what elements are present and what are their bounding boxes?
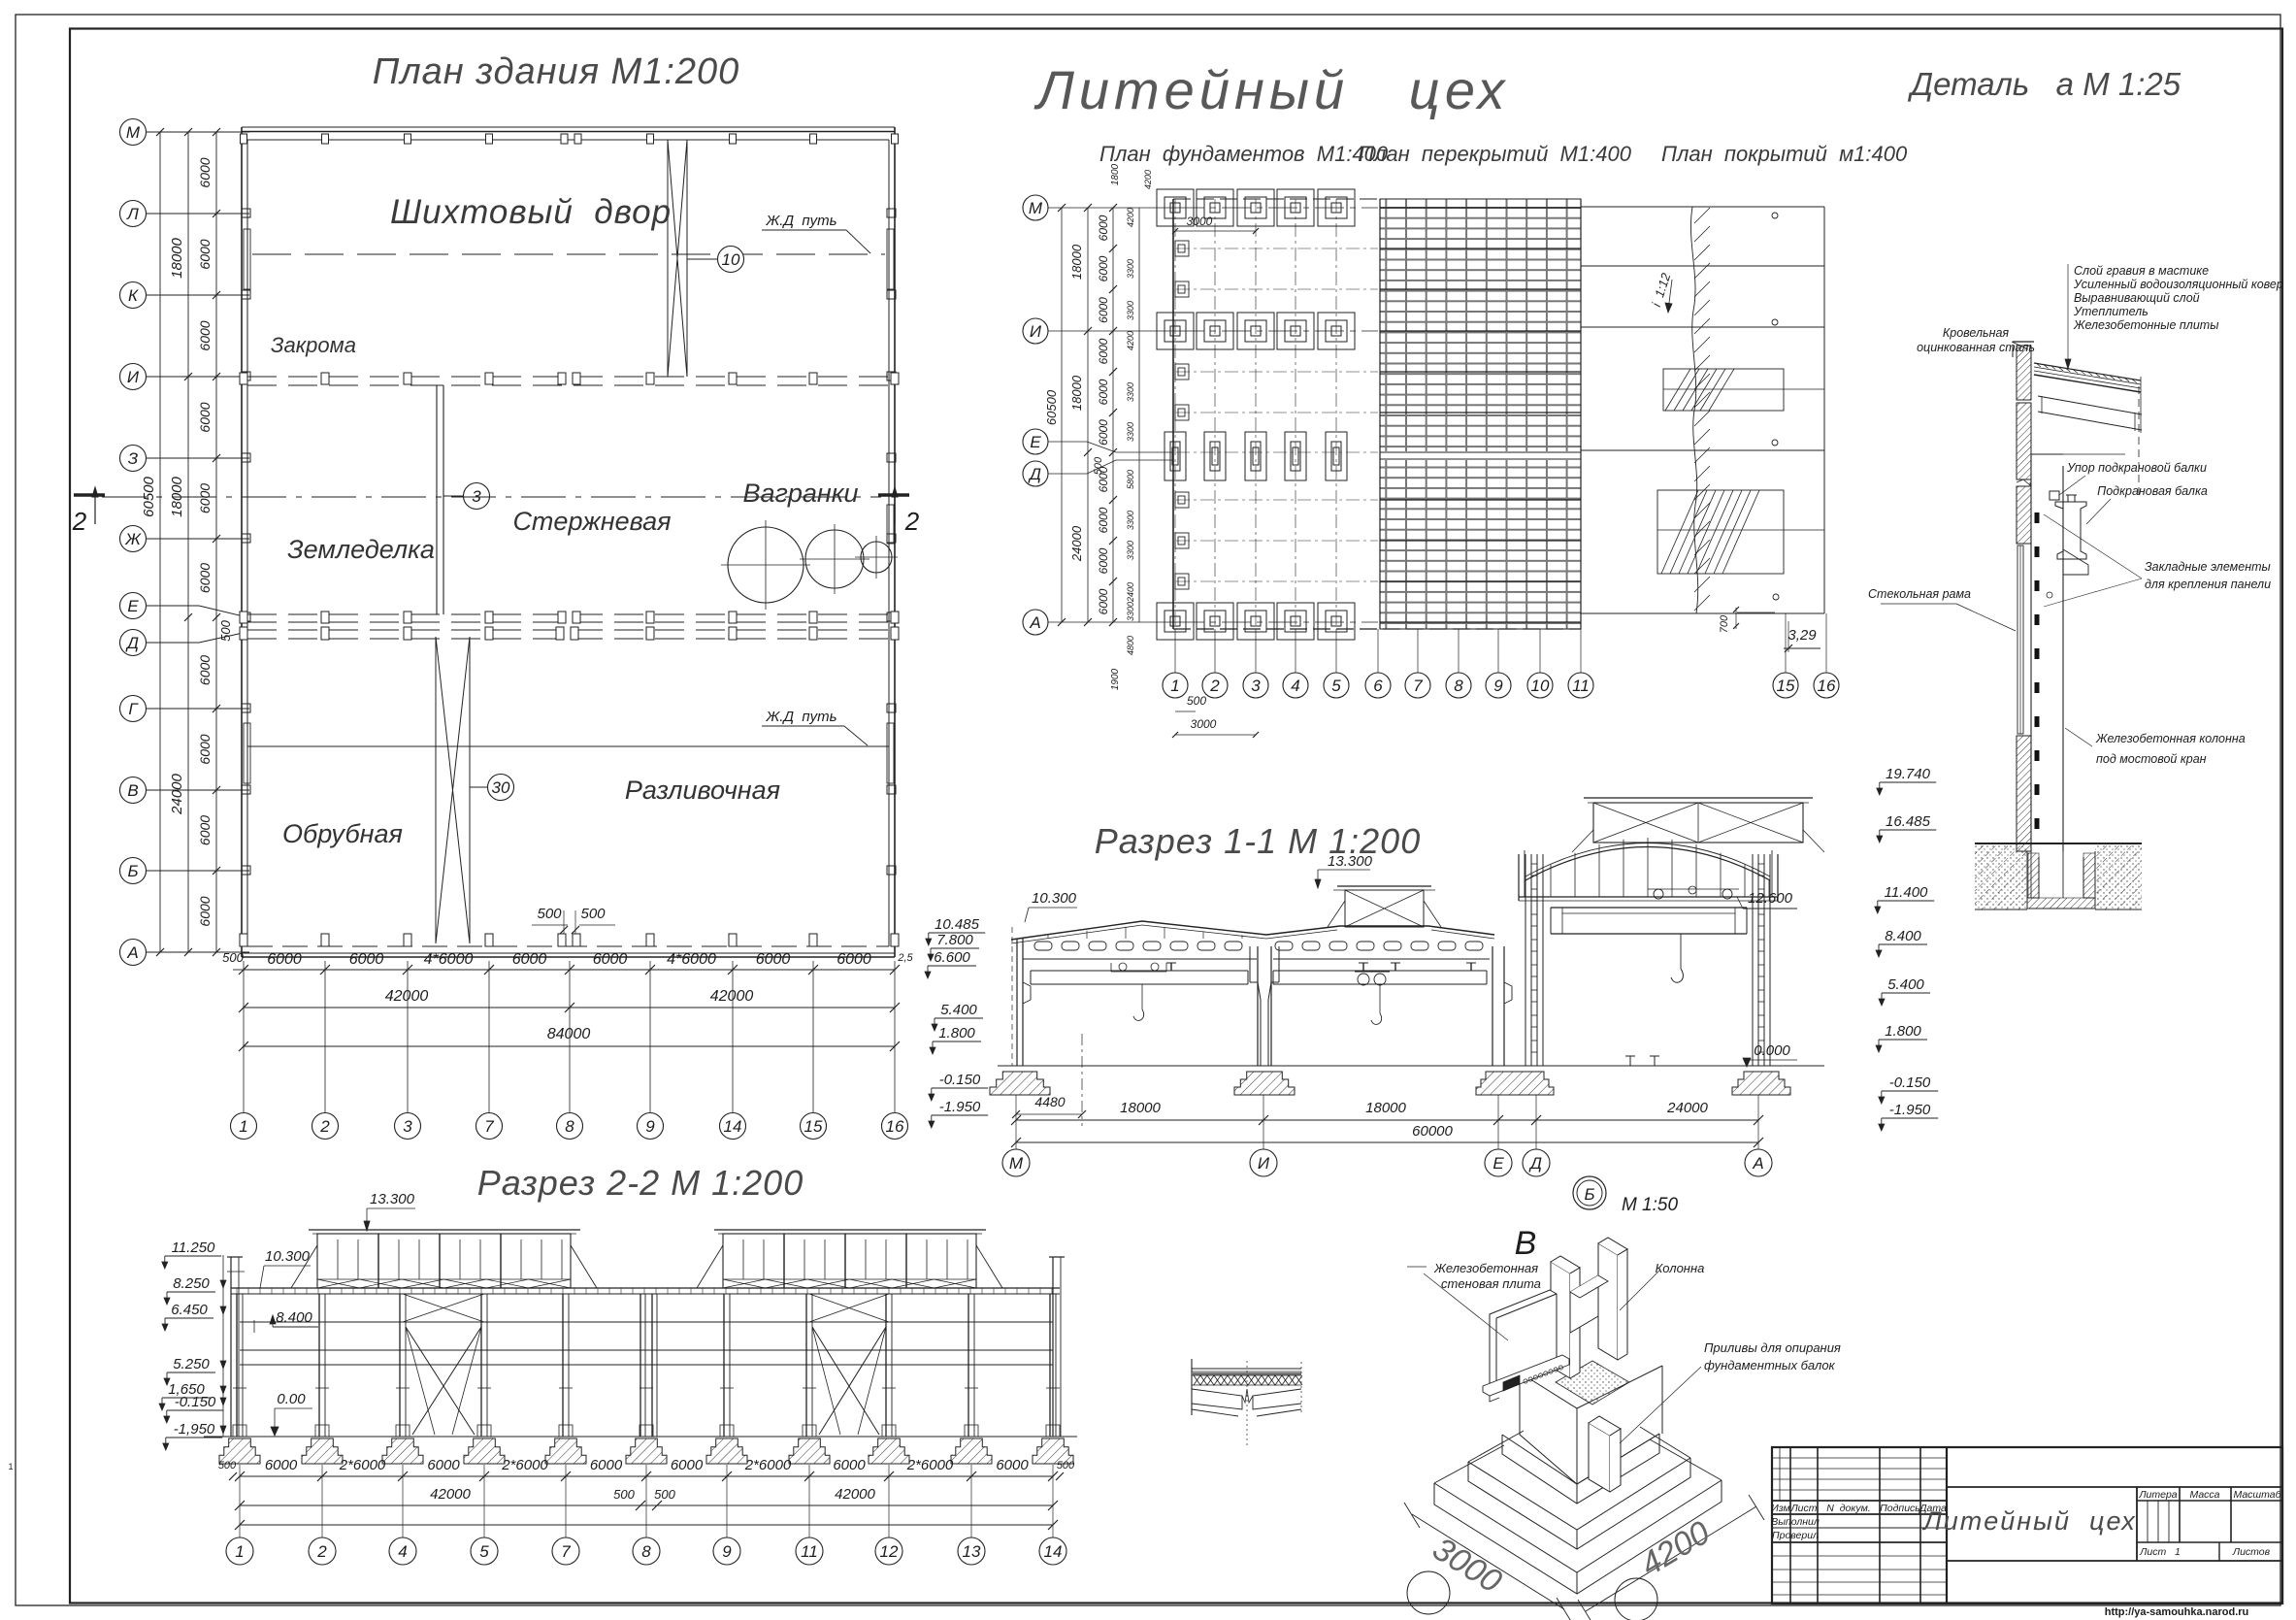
svg-text:6000: 6000 (593, 951, 628, 968)
svg-text:6000: 6000 (590, 1457, 623, 1473)
svg-text:4*6000: 4*6000 (667, 951, 716, 968)
svg-text:500: 500 (1187, 694, 1206, 708)
svg-text:Подпись: Подпись (1880, 1503, 1920, 1514)
svg-text:3300: 3300 (1126, 259, 1135, 279)
svg-text:3,29: 3,29 (1788, 627, 1817, 644)
svg-text:2*6000: 2*6000 (339, 1457, 386, 1473)
svg-text:18000: 18000 (169, 237, 185, 278)
svg-text:И: И (127, 368, 140, 386)
svg-text:Д: Д (1028, 465, 1041, 483)
svg-text:М: М (1009, 1154, 1024, 1173)
svg-text:6000: 6000 (1097, 255, 1110, 281)
svg-text:Утеплитель: Утеплитель (2073, 305, 2148, 318)
svg-text:8: 8 (565, 1117, 574, 1136)
svg-text:Изм: Изм (1771, 1503, 1789, 1514)
svg-text:6000: 6000 (1097, 419, 1110, 446)
svg-text:В: В (1515, 1225, 1537, 1262)
svg-text:9: 9 (1493, 677, 1503, 695)
svg-text:Разливочная: Разливочная (625, 776, 780, 805)
svg-text:Ж.Д путь: Ж.Д путь (766, 709, 837, 725)
svg-text:Литера: Литера (2138, 1489, 2177, 1501)
svg-text:6000: 6000 (671, 1457, 704, 1473)
svg-text:6000: 6000 (197, 483, 213, 513)
svg-text:-0.150: -0.150 (939, 1072, 981, 1088)
svg-text:7: 7 (1413, 677, 1423, 695)
svg-text:А: А (1752, 1154, 1763, 1173)
svg-text:6000: 6000 (1097, 379, 1110, 405)
svg-text:6000: 6000 (836, 951, 871, 968)
svg-text:Земледелка: Земледелка (287, 535, 435, 564)
svg-text:3300: 3300 (1126, 511, 1135, 530)
svg-text:2,5: 2,5 (897, 952, 913, 964)
svg-text:6000: 6000 (197, 402, 213, 432)
svg-text:6000: 6000 (1097, 338, 1110, 364)
svg-text:11: 11 (801, 1542, 818, 1561)
svg-text:6000: 6000 (197, 815, 213, 845)
svg-text:6000: 6000 (197, 239, 213, 269)
svg-text:6000: 6000 (1097, 507, 1110, 533)
svg-text:М: М (126, 123, 141, 142)
svg-text:А: А (126, 943, 138, 962)
svg-text:оцинкованная сталь: оцинкованная сталь (1917, 341, 2035, 354)
svg-text:Б: Б (127, 862, 138, 880)
svg-text:9: 9 (722, 1542, 732, 1561)
svg-text:8.400: 8.400 (1885, 928, 1921, 944)
svg-text:10.485: 10.485 (935, 916, 980, 933)
svg-text:6000: 6000 (197, 734, 213, 764)
svg-text:План фундаментов М1:400: План фундаментов М1:400 (1099, 142, 1389, 166)
svg-text:13.300: 13.300 (370, 1191, 415, 1207)
svg-text:Масса: Масса (2189, 1489, 2219, 1501)
svg-text:8: 8 (1454, 677, 1463, 695)
svg-text:19.740: 19.740 (1886, 766, 1931, 782)
svg-text:Лист: Лист (1789, 1503, 1817, 1514)
svg-text:12.600: 12.600 (1748, 890, 1793, 907)
svg-text:2*6000: 2*6000 (744, 1457, 792, 1473)
svg-text:60000: 60000 (1412, 1123, 1453, 1140)
svg-text:План здания М1:200: План здания М1:200 (373, 51, 740, 92)
svg-text:6000: 6000 (996, 1457, 1029, 1473)
svg-text:42000: 42000 (835, 1486, 875, 1503)
svg-text:5.400: 5.400 (940, 1002, 977, 1018)
svg-text:2*6000: 2*6000 (501, 1457, 548, 1473)
svg-text:2: 2 (319, 1117, 330, 1136)
svg-text:Упор подкрановой балки: Упор подкрановой балки (2066, 461, 2207, 475)
svg-text:Масштаб: Масштаб (2233, 1489, 2281, 1501)
svg-text:1.800: 1.800 (1885, 1023, 1921, 1040)
svg-text:18000: 18000 (1365, 1100, 1406, 1116)
svg-text:Лист 1: Лист 1 (2139, 1546, 2181, 1558)
svg-text:5.400: 5.400 (1887, 976, 1924, 993)
svg-text:6000: 6000 (427, 1457, 460, 1473)
svg-text:16: 16 (1818, 677, 1836, 695)
svg-text:5: 5 (1331, 677, 1341, 695)
svg-text:для крепления панели: для крепления панели (2145, 578, 2271, 591)
svg-text:1: 1 (235, 1542, 244, 1561)
svg-text:3300: 3300 (1126, 541, 1135, 560)
svg-text:Ж.Д путь: Ж.Д путь (766, 213, 837, 229)
svg-text:16: 16 (886, 1117, 904, 1136)
svg-text:Приливы для опирания: Приливы для опирания (1704, 1340, 1841, 1355)
svg-text:8.250: 8.250 (173, 1275, 210, 1292)
svg-text:Ж: Ж (124, 530, 142, 548)
svg-text:3000: 3000 (1187, 215, 1213, 228)
svg-text:6000: 6000 (756, 951, 791, 968)
svg-text:500: 500 (218, 1460, 237, 1471)
svg-text:Е: Е (1030, 433, 1041, 451)
svg-text:0.00: 0.00 (277, 1391, 306, 1407)
svg-text:2: 2 (72, 507, 87, 536)
svg-text:11: 11 (1572, 677, 1590, 695)
svg-text:Шихтовый двор: Шихтовый двор (390, 193, 672, 231)
svg-text:А: А (1029, 613, 1040, 632)
svg-text:12: 12 (880, 1542, 899, 1561)
svg-text:14: 14 (724, 1117, 742, 1136)
svg-text:М 1:50: М 1:50 (1622, 1195, 1679, 1215)
svg-text:-1.950: -1.950 (939, 1099, 981, 1115)
svg-text:План покрытий м1:400: План покрытий м1:400 (1661, 142, 1908, 166)
svg-text:500: 500 (218, 619, 233, 641)
svg-text:6000: 6000 (1097, 547, 1110, 574)
svg-text:24000: 24000 (1069, 525, 1084, 562)
svg-text:Подкрановая балка: Подкрановая балка (2097, 484, 2208, 498)
svg-text:42000: 42000 (430, 1486, 471, 1503)
svg-text:4200: 4200 (1126, 331, 1135, 350)
svg-text:Закладные элементы: Закладные элементы (2145, 560, 2271, 574)
svg-text:под мостовой кран: под мостовой кран (2096, 752, 2207, 766)
svg-text:Проверил: Проверил (1772, 1530, 1819, 1541)
svg-text:6000: 6000 (197, 320, 213, 350)
svg-text:4200: 4200 (1126, 208, 1135, 227)
svg-text:М: М (1029, 199, 1043, 217)
svg-text:42000: 42000 (385, 988, 429, 1005)
svg-text:Железобетонные плиты: Железобетонные плиты (2073, 318, 2218, 332)
svg-text:-0.150: -0.150 (175, 1394, 216, 1410)
svg-text:500: 500 (1057, 1460, 1075, 1471)
svg-text:8: 8 (641, 1542, 651, 1561)
svg-text:10: 10 (1531, 677, 1550, 695)
svg-text:Б: Б (1584, 1185, 1594, 1204)
svg-text:9: 9 (645, 1117, 655, 1136)
svg-text:-1.950: -1.950 (1889, 1102, 1931, 1118)
svg-text:0.000: 0.000 (1754, 1042, 1790, 1059)
svg-text:6000: 6000 (1097, 297, 1110, 323)
svg-text:Закрома: Закрома (271, 333, 356, 357)
svg-text:Выравнивающий слой: Выравнивающий слой (2074, 291, 2200, 305)
svg-text:16.485: 16.485 (1886, 813, 1931, 830)
svg-text:7.800: 7.800 (936, 932, 973, 948)
svg-text:5800: 5800 (1126, 470, 1135, 489)
svg-text:6000: 6000 (197, 896, 213, 926)
svg-text:Стекольная рама: Стекольная рама (1868, 587, 1971, 601)
svg-text:24000: 24000 (1666, 1100, 1708, 1116)
svg-text:К: К (128, 286, 139, 305)
svg-text:3: 3 (403, 1117, 412, 1136)
svg-text:1900: 1900 (1110, 668, 1121, 690)
svg-text:18000: 18000 (1069, 244, 1084, 280)
svg-text:Листов: Листов (2232, 1546, 2271, 1558)
svg-text:N докум.: N докум. (1826, 1503, 1870, 1514)
svg-text:-0.150: -0.150 (1889, 1074, 1931, 1091)
svg-text:Выполнил: Выполнил (1771, 1516, 1820, 1528)
svg-text:Железобетонная колонна: Железобетонная колонна (2095, 732, 2246, 745)
svg-text:4*6000: 4*6000 (424, 951, 474, 968)
svg-text:60500: 60500 (1044, 389, 1059, 425)
svg-text:11.250: 11.250 (172, 1240, 215, 1256)
svg-text:1.800: 1.800 (938, 1025, 975, 1041)
svg-text:6000: 6000 (267, 951, 302, 968)
svg-text:2400: 2400 (1126, 582, 1135, 603)
svg-text:6: 6 (1373, 677, 1383, 695)
svg-text:Деталь а М 1:25: Деталь а М 1:25 (1907, 66, 2181, 102)
svg-text:500: 500 (537, 906, 562, 922)
svg-text:3300: 3300 (1126, 301, 1135, 320)
svg-text:13: 13 (963, 1542, 981, 1561)
svg-text:500: 500 (613, 1487, 635, 1502)
svg-text:6000: 6000 (197, 563, 213, 593)
svg-text:6.450: 6.450 (171, 1302, 208, 1318)
svg-text:3000: 3000 (1191, 717, 1217, 731)
svg-text:4800: 4800 (1126, 636, 1135, 655)
svg-text:15: 15 (1777, 677, 1795, 695)
svg-text:18000: 18000 (1069, 375, 1084, 411)
svg-text:И: И (1030, 322, 1042, 341)
svg-text:6000: 6000 (1097, 466, 1110, 492)
svg-text:4200: 4200 (1143, 170, 1153, 189)
svg-text:Вагранки: Вагранки (743, 479, 859, 508)
svg-text:6000: 6000 (265, 1457, 298, 1473)
svg-text:1: 1 (239, 1117, 247, 1136)
svg-text:10.300: 10.300 (1032, 890, 1077, 907)
svg-text:2: 2 (1209, 677, 1220, 695)
svg-text:В: В (127, 781, 138, 800)
svg-text:14: 14 (1044, 1542, 1063, 1561)
svg-text:500: 500 (222, 950, 244, 965)
svg-text:фундаментных балок: фундаментных балок (1704, 1358, 1836, 1372)
svg-text:10: 10 (722, 250, 740, 269)
svg-text:3300: 3300 (1126, 422, 1135, 442)
svg-text:План перекрытий М1:400: План перекрытий М1:400 (1359, 142, 1632, 166)
svg-text:-1,950: -1,950 (174, 1421, 215, 1438)
svg-text:3300: 3300 (1126, 382, 1135, 402)
svg-text:6000: 6000 (1097, 588, 1110, 614)
svg-text:Железобетонная: Железобетонная (1433, 1261, 1538, 1275)
svg-text:84000: 84000 (547, 1026, 591, 1042)
svg-text:700: 700 (1719, 614, 1730, 633)
svg-text:стеновая плита: стеновая плита (1441, 1276, 1541, 1291)
svg-text:6000: 6000 (197, 157, 213, 187)
svg-text:1800: 1800 (1110, 163, 1121, 185)
svg-text:5.250: 5.250 (173, 1356, 210, 1372)
svg-text:6000: 6000 (833, 1457, 866, 1473)
svg-text:6000: 6000 (1097, 215, 1110, 241)
svg-text:1: 1 (8, 1462, 13, 1471)
svg-text:Слой гравия в мастике: Слой гравия в мастике (2074, 264, 2209, 278)
svg-text:10.300: 10.300 (265, 1248, 311, 1265)
svg-text:Д: Д (125, 634, 139, 652)
svg-text:Е: Е (1492, 1154, 1504, 1173)
svg-text:З: З (128, 449, 139, 468)
svg-text:Е: Е (127, 597, 139, 615)
svg-text:Разрез 2-2 М 1:200: Разрез 2-2 М 1:200 (477, 1163, 804, 1203)
svg-text:Усиленный водоизоляционный ков: Усиленный водоизоляционный ковер (2073, 278, 2283, 291)
svg-text:6000: 6000 (349, 951, 384, 968)
svg-text:5: 5 (479, 1542, 489, 1561)
svg-text:2: 2 (904, 507, 920, 536)
svg-text:4: 4 (398, 1542, 407, 1561)
svg-text:Литейный цех: Литейный цех (1921, 1506, 2137, 1536)
svg-text:6.600: 6.600 (934, 949, 970, 966)
svg-text:Кровельная: Кровельная (1943, 326, 2010, 340)
svg-text:15: 15 (804, 1117, 823, 1136)
svg-text:6000: 6000 (197, 655, 213, 685)
svg-text:Стержневая: Стержневая (512, 507, 671, 536)
svg-text:500: 500 (654, 1487, 675, 1502)
svg-text:4: 4 (1291, 677, 1299, 695)
svg-text:2: 2 (316, 1542, 327, 1561)
svg-text:6000: 6000 (512, 951, 547, 968)
svg-text:Обрубная: Обрубная (282, 819, 403, 848)
svg-text:4480: 4480 (1034, 1094, 1065, 1109)
svg-text:И: И (1258, 1154, 1270, 1173)
svg-text:Д: Д (1528, 1154, 1542, 1173)
svg-text:30: 30 (492, 778, 510, 797)
svg-text:Колонна: Колонна (1656, 1261, 1705, 1275)
svg-text:500: 500 (580, 906, 606, 922)
svg-text:2*6000: 2*6000 (906, 1457, 954, 1473)
svg-text:7: 7 (484, 1117, 494, 1136)
svg-text:3: 3 (1251, 677, 1261, 695)
svg-text:Литейный цех: Литейный цех (1033, 59, 1509, 120)
svg-text:3300: 3300 (1126, 602, 1135, 621)
svg-text:11.400: 11.400 (1885, 884, 1928, 901)
svg-text:24000: 24000 (169, 773, 185, 814)
svg-text:Л: Л (126, 205, 139, 223)
svg-text:http://ya-samouhka.narod.ru: http://ya-samouhka.narod.ru (2105, 1606, 2249, 1618)
svg-text:13.300: 13.300 (1328, 853, 1373, 870)
svg-text:8.400: 8.400 (276, 1309, 312, 1326)
svg-text:7: 7 (561, 1542, 571, 1561)
svg-text:42000: 42000 (710, 988, 754, 1005)
svg-text:1: 1 (1170, 677, 1179, 695)
svg-text:18000: 18000 (1120, 1100, 1161, 1116)
